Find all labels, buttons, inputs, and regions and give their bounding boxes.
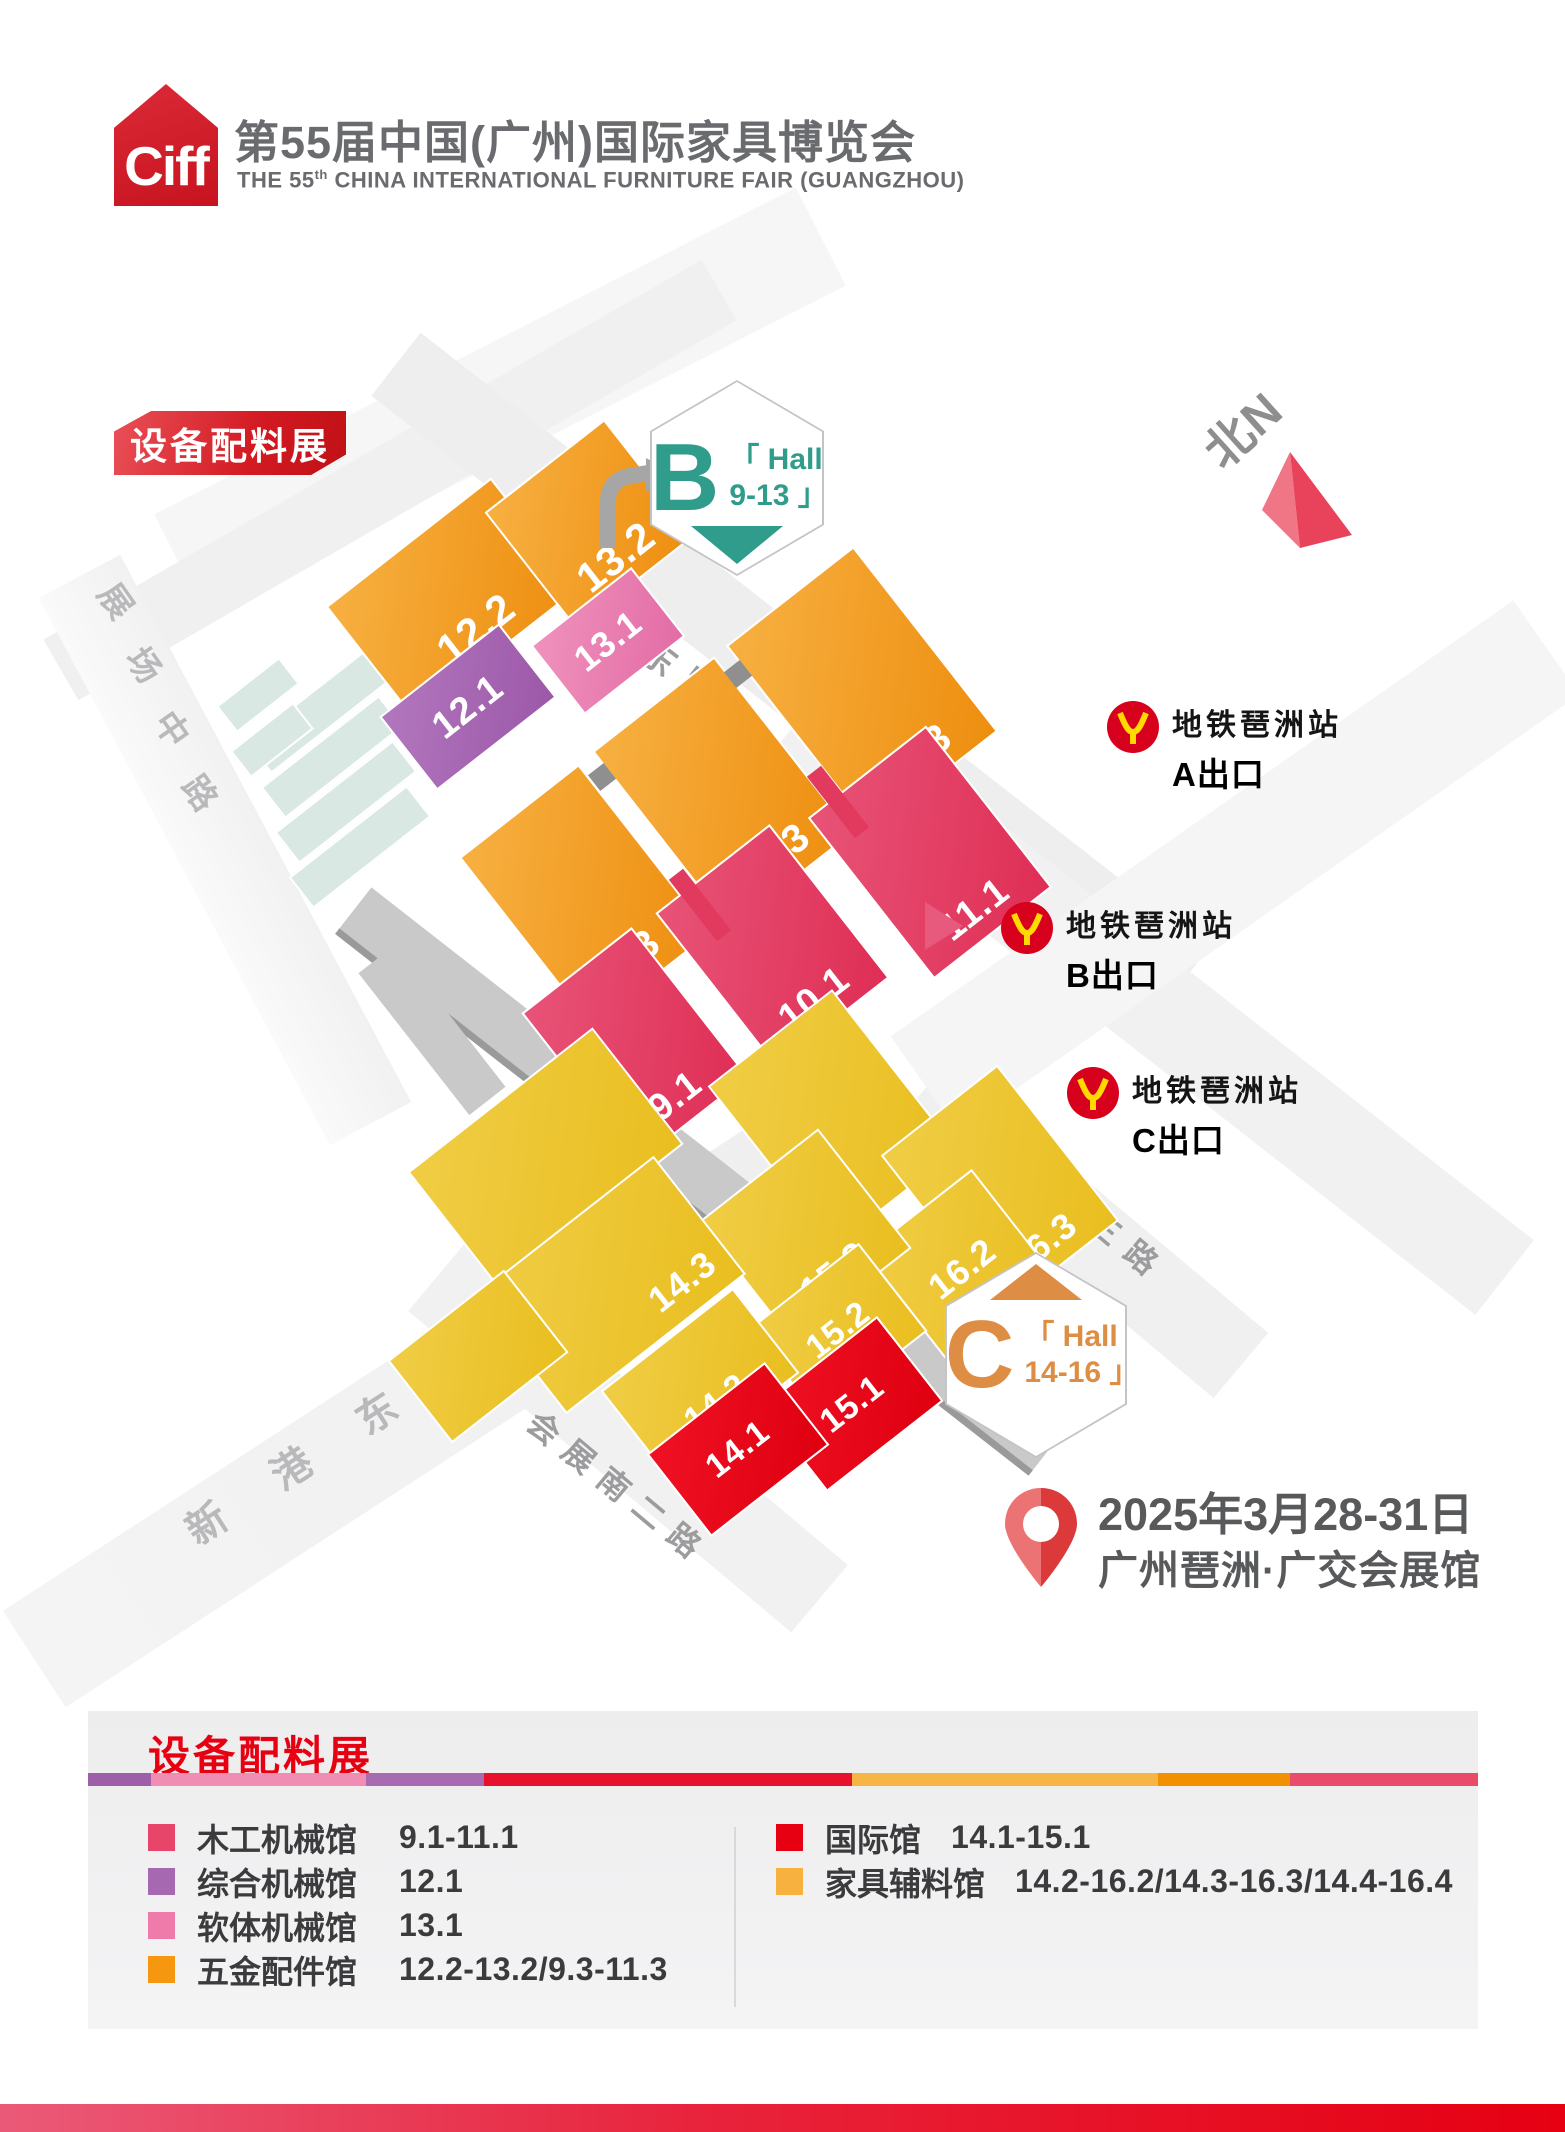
legend-hall-range: 13.1	[399, 1907, 463, 1944]
legend-swatch	[148, 1956, 175, 1983]
legend-hall-name: 木工机械馆	[197, 1815, 369, 1861]
legend-column-left: 木工机械馆9.1-11.1综合机械馆12.1软体机械馆13.1五金配件馆12.2…	[148, 1823, 734, 2007]
expo-category-badge: 设备配料展	[114, 411, 346, 475]
metro-logo-icon	[1000, 901, 1054, 955]
legend-item: 木工机械馆9.1-11.1	[148, 1823, 734, 1852]
legend-panel: 设备配料展 木工机械馆9.1-11.1综合机械馆12.1软体机械馆13.1五金配…	[88, 1711, 1478, 2029]
metro-exit-marker: 地铁琶洲站A出口	[1106, 700, 1342, 796]
hall-c-line1: 「 Hall	[1024, 1319, 1127, 1355]
legend-swatch	[148, 1824, 175, 1851]
metro-logo-icon	[1106, 700, 1160, 754]
metro-exit-label: A出口	[1172, 748, 1342, 796]
footer-accent-bar	[0, 2104, 1565, 2132]
legend-hall-range: 14.1-15.1	[951, 1819, 1091, 1856]
hall-b-line2: 9-13 」	[729, 478, 824, 514]
hall-c-letter: C	[945, 1307, 1014, 1403]
legend-item: 软体机械馆13.1	[148, 1911, 734, 1940]
metro-station-name: 地铁琶洲站	[1066, 901, 1236, 945]
legend-swatch	[148, 1868, 175, 1895]
ciff-logo-text: Ciff	[124, 139, 208, 206]
legend-stripe-segment	[366, 1773, 484, 1786]
legend-stripe-segment	[1290, 1773, 1478, 1786]
hall-b-letter: B	[650, 430, 719, 526]
legend-column-right: 国际馆14.1-15.1家具辅料馆14.2-16.2/14.3-16.3/14.…	[776, 1823, 1453, 2007]
metro-exit-label: C出口	[1132, 1114, 1302, 1162]
subtitle-ordinal: th	[315, 167, 328, 182]
subtitle-rest: CHINA INTERNATIONAL FURNITURE FAIR (GUAN…	[328, 167, 965, 192]
legend-color-stripe	[88, 1773, 1478, 1786]
metro-exit-label: B出口	[1066, 949, 1236, 997]
page-title: 第55届中国(广州)国际家具博览会	[234, 106, 916, 171]
legend-stripe-segment	[484, 1773, 852, 1786]
legend-item: 国际馆14.1-15.1	[776, 1823, 1453, 1852]
legend-stripe-segment	[1158, 1773, 1290, 1786]
metro-exit-marker: 地铁琶洲站B出口	[1000, 901, 1236, 997]
metro-station-name: 地铁琶洲站	[1172, 700, 1342, 744]
metro-exit-marker: 地铁琶洲站C出口	[1066, 1066, 1302, 1162]
hall-c-line2: 14-16 」	[1024, 1355, 1127, 1391]
metro-station-name: 地铁琶洲站	[1132, 1066, 1302, 1110]
legend-hall-range: 14.2-16.2/14.3-16.3/14.4-16.4	[1015, 1863, 1453, 1900]
event-venue: 广州琶洲·广交会展馆	[1098, 1538, 1481, 1596]
legend-hall-name: 综合机械馆	[197, 1859, 369, 1905]
legend-item: 综合机械馆12.1	[148, 1867, 734, 1896]
legend-hall-name: 软体机械馆	[197, 1903, 369, 1949]
legend-hall-name: 国际馆	[825, 1815, 921, 1861]
hall-b-line1: 「 Hall	[729, 442, 824, 478]
legend-hall-name: 五金配件馆	[197, 1947, 369, 1993]
legend-stripe-segment	[151, 1773, 366, 1786]
metro-logo-icon	[1066, 1066, 1120, 1120]
legend-hall-range: 9.1-11.1	[399, 1819, 519, 1856]
legend-stripe-segment	[852, 1773, 1158, 1786]
legend-swatch	[776, 1824, 803, 1851]
legend-stripe-segment	[88, 1773, 151, 1786]
legend-swatch	[776, 1868, 803, 1895]
event-date: 2025年3月28-31日	[1098, 1478, 1473, 1543]
legend-hall-range: 12.2-13.2/9.3-11.3	[399, 1951, 668, 1988]
page-subtitle: THE 55th CHINA INTERNATIONAL FURNITURE F…	[237, 167, 965, 193]
legend-divider	[734, 1827, 736, 2007]
legend-item: 家具辅料馆14.2-16.2/14.3-16.3/14.4-16.4	[776, 1867, 1453, 1896]
poster-page: Ciff 第55届中国(广州)国际家具博览会 THE 55th CHINA IN…	[0, 0, 1565, 2132]
legend-hall-name: 家具辅料馆	[825, 1859, 985, 1905]
legend-swatch	[148, 1912, 175, 1939]
subtitle-prefix: THE 55	[237, 167, 315, 192]
legend-hall-range: 12.1	[399, 1863, 463, 1900]
legend-item: 五金配件馆12.2-13.2/9.3-11.3	[148, 1955, 734, 1984]
